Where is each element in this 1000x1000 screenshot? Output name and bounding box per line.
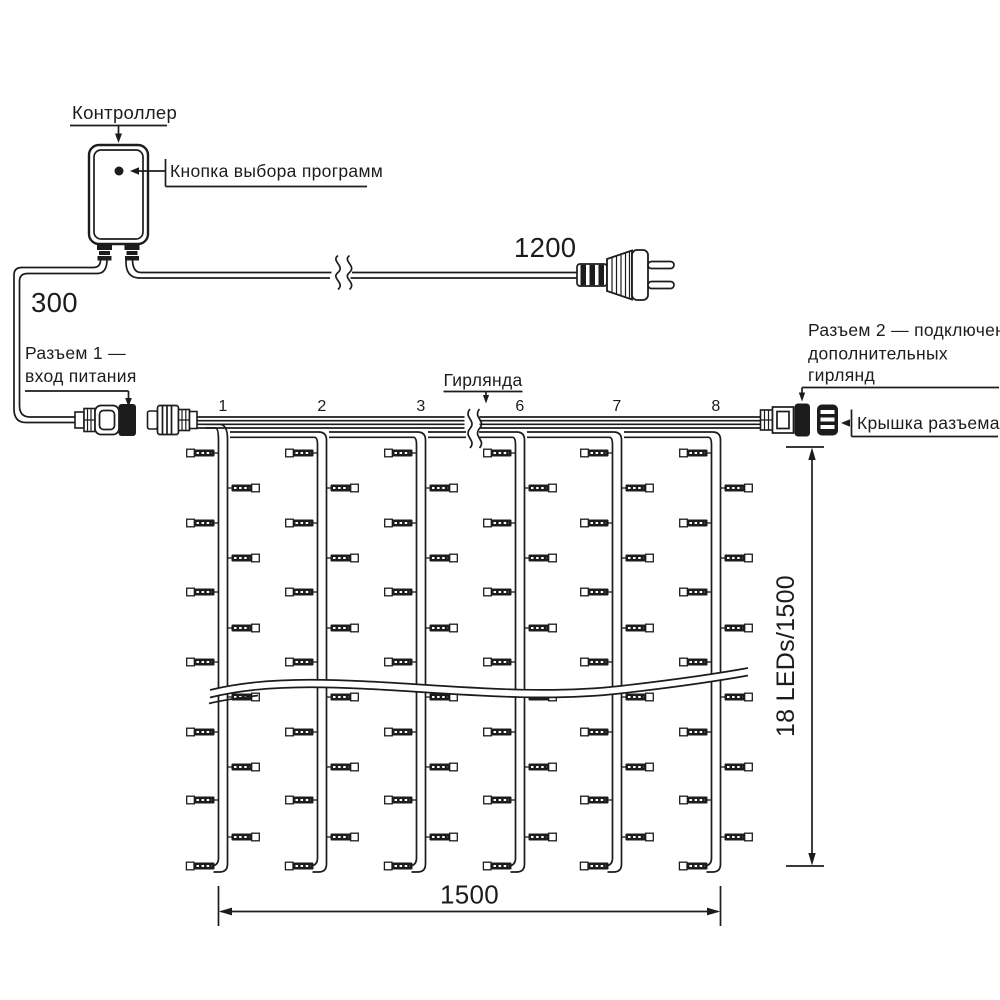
led-cap	[680, 796, 688, 804]
curtain-drop: 1	[186, 398, 259, 872]
led-cap	[385, 519, 393, 527]
led-cap	[286, 449, 294, 457]
cable-gland-left	[97, 245, 112, 261]
led-cap	[680, 728, 688, 736]
garland-arrow-icon	[483, 395, 489, 404]
led-cap	[187, 728, 195, 736]
plug-pin	[648, 282, 674, 289]
dim-width-label: 1500	[440, 880, 499, 910]
dim-width-arrow-left-icon	[219, 908, 232, 916]
drop-number: 2	[317, 398, 326, 415]
cap-label: Крышка разъема	[857, 413, 1000, 433]
connector1-collar	[75, 412, 84, 428]
dim-height-arrow-up-icon	[808, 448, 815, 461]
controller-label: Контроллер	[72, 102, 177, 123]
power-plug	[577, 250, 674, 300]
drop-number: 3	[416, 398, 425, 415]
led-cap	[384, 862, 392, 870]
led-cap	[680, 449, 688, 457]
led-cap	[581, 658, 589, 666]
power-cables: 300 1200	[14, 232, 578, 423]
led-cap	[385, 728, 393, 736]
led-cap	[385, 588, 393, 596]
program-button-label: Кнопка выбора программ	[170, 161, 383, 181]
connector2-label-line2: дополнительных	[808, 344, 948, 364]
led-cap	[252, 484, 260, 492]
led-cap	[549, 833, 557, 841]
drop-number: 1	[218, 398, 227, 415]
garland-label: Гирлянда	[443, 370, 522, 390]
cap-arrow-icon	[841, 419, 850, 427]
led-cap	[745, 763, 753, 771]
led-cap	[351, 693, 359, 701]
led-cap	[286, 588, 294, 596]
curtain-drop: 2	[230, 398, 358, 872]
connector1-plate	[190, 412, 198, 429]
program-button-dot	[115, 167, 124, 176]
drop-wire	[230, 432, 327, 872]
dim-300-label: 300	[31, 287, 78, 318]
led-cap	[581, 449, 589, 457]
led-cap	[484, 449, 492, 457]
led-cap	[484, 728, 492, 736]
led-cap	[450, 624, 458, 632]
led-cap	[484, 519, 492, 527]
led-cap	[581, 588, 589, 596]
led-cap	[646, 693, 654, 701]
led-cap	[252, 554, 260, 562]
led-cap	[680, 658, 688, 666]
led-cap	[646, 763, 654, 771]
led-cap	[646, 624, 654, 632]
connector2-arrow-icon	[799, 393, 805, 402]
led-cap	[549, 484, 557, 492]
diagram-page: Контроллер Кнопка выбора программ 300	[0, 0, 1000, 1000]
led-cap	[484, 588, 492, 596]
curtain-drop: 8	[624, 398, 752, 872]
connector1-male-thread	[119, 404, 137, 436]
led-cap	[186, 862, 194, 870]
led-cap	[484, 658, 492, 666]
connector1-female-nut	[158, 406, 179, 435]
led-cap	[549, 763, 557, 771]
garland-leader-line	[444, 392, 523, 396]
drop-wire	[428, 432, 525, 872]
cable-to-connector1	[14, 259, 101, 423]
diagram-canvas: Контроллер Кнопка выбора программ 300	[0, 0, 1000, 1000]
led-cap	[351, 833, 359, 841]
led-cap	[187, 588, 195, 596]
curtain-wave-break	[209, 668, 748, 704]
dim-height: 18 LEDs/1500	[772, 447, 824, 866]
controller: Контроллер Кнопка выбора программ	[70, 102, 383, 261]
connector2-cap	[817, 405, 838, 436]
drop-number: 6	[515, 398, 524, 415]
dim-height-label: 18 LEDs/1500	[772, 575, 800, 737]
led-cap	[252, 833, 260, 841]
led-cap	[351, 763, 359, 771]
controller-box	[89, 145, 148, 244]
cable-gland-right	[125, 245, 140, 261]
led-cap	[549, 624, 557, 632]
led-cap	[285, 862, 293, 870]
led-cap	[351, 554, 359, 562]
led-cap	[580, 862, 588, 870]
connector2-plug	[795, 404, 811, 437]
curtain: 123678	[186, 398, 752, 872]
led-cap	[646, 484, 654, 492]
led-cap	[581, 728, 589, 736]
led-cap	[646, 554, 654, 562]
drop-wire	[206, 424, 228, 872]
dim-width: 1500	[219, 880, 721, 927]
led-cap	[252, 624, 260, 632]
led-cap	[286, 658, 294, 666]
led-cap	[187, 658, 195, 666]
led-cap	[680, 519, 688, 527]
drop-wire	[624, 432, 721, 872]
connector2-leader-line	[802, 388, 999, 394]
led-cap	[680, 588, 688, 596]
curtain-drop: 7	[527, 398, 653, 872]
plug-pin	[648, 262, 674, 269]
dim-width-arrow-right-icon	[707, 908, 720, 916]
plug-grip	[607, 251, 632, 300]
led-cap	[745, 624, 753, 632]
led-cap	[483, 862, 491, 870]
led-cap	[450, 484, 458, 492]
drop-wire	[329, 432, 426, 872]
led-cap	[450, 833, 458, 841]
led-cap	[484, 796, 492, 804]
dim-height-arrow-down-icon	[808, 853, 815, 866]
cable-break-icon	[336, 256, 340, 290]
cable-break-icon	[347, 256, 351, 290]
led-cap	[745, 693, 753, 701]
curtain-drop: 6	[428, 398, 556, 872]
led-cap	[286, 728, 294, 736]
cable-to-plug-inner	[133, 259, 579, 273]
connector1-leader-line	[25, 391, 129, 399]
connector1-female-tip	[148, 411, 158, 429]
drop-number: 8	[711, 398, 720, 415]
led-cap	[187, 449, 195, 457]
connector2-label-line1: Разъем 2 — подключение	[808, 320, 1000, 340]
controller-arrow-icon	[115, 134, 122, 144]
led-cap	[450, 554, 458, 562]
led-cap	[385, 658, 393, 666]
led-cap	[252, 763, 260, 771]
led-cap	[286, 519, 294, 527]
cable-to-connector1-inner	[20, 259, 108, 417]
led-cap	[351, 624, 359, 632]
led-cap	[286, 796, 294, 804]
led-cap	[351, 484, 359, 492]
led-cap	[385, 449, 393, 457]
curtain-drop: 3	[329, 398, 457, 872]
connector2: Разъем 2 — подключение дополнительных ги…	[761, 320, 1000, 437]
dim-1200-label: 1200	[514, 232, 576, 263]
connector2-label-line3: гирлянд	[808, 365, 875, 385]
led-cap	[745, 833, 753, 841]
plug-body	[632, 250, 648, 300]
led-cap	[581, 519, 589, 527]
band-break-icon	[466, 408, 482, 452]
led-cap	[187, 519, 195, 527]
led-cap	[679, 862, 687, 870]
led-cap	[581, 796, 589, 804]
led-cap	[745, 484, 753, 492]
led-cap	[549, 554, 557, 562]
led-cap	[646, 833, 654, 841]
drop-wire	[527, 432, 622, 872]
connector1-label-line2: вход питания	[25, 366, 137, 386]
connector1-label-line1: Разъем 1 —	[25, 343, 126, 363]
led-cap	[385, 796, 393, 804]
drop-number: 7	[612, 398, 621, 415]
led-cap	[450, 763, 458, 771]
led-cap	[745, 554, 753, 562]
led-cap	[187, 796, 195, 804]
